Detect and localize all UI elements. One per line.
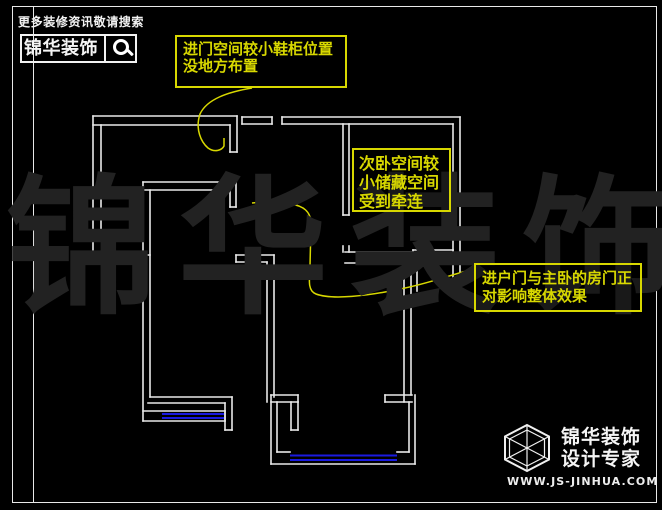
watermark: 锦华装饰 xyxy=(6,168,662,338)
magnifier-handle xyxy=(126,49,134,57)
footer-logo-cube-icon xyxy=(497,423,557,473)
footer-brand: 锦华装饰 设计专家 xyxy=(561,426,641,470)
annotation-box-entry-door: 进户门与主卧的房门正 对影响整体效果 xyxy=(474,263,642,312)
annotation-line: 进户门与主卧的房门正 xyxy=(482,269,640,287)
magnifier-icon xyxy=(106,36,135,61)
annotation-line: 受到牵连 xyxy=(359,192,449,211)
footer-brand-slogan: 设计专家 xyxy=(561,448,641,470)
brand-logo-text: 锦华装饰 xyxy=(22,36,104,61)
annotation-line: 进门空间较小鞋柜位置 xyxy=(183,41,345,58)
floorplan-promo-image: 锦华装饰 更多装修资讯敬请搜索 锦华装饰 进门空间较小鞋柜位置 没地方布置 次卧… xyxy=(0,0,662,510)
search-tagline: 更多装修资讯敬请搜索 xyxy=(18,13,144,30)
annotation-box-second-bedroom: 次卧空间较 小储藏空间 受到牵连 xyxy=(352,148,451,212)
annotation-line: 次卧空间较 xyxy=(359,154,449,173)
magnifier-lens xyxy=(113,39,129,55)
annotation-box-entry: 进门空间较小鞋柜位置 没地方布置 xyxy=(175,35,347,88)
footer-brand-name: 锦华装饰 xyxy=(561,426,641,448)
annotation-line: 没地方布置 xyxy=(183,58,345,75)
brand-logo: 锦华装饰 xyxy=(20,34,137,63)
annotation-line: 对影响整体效果 xyxy=(482,287,640,305)
footer-website: WWW.JS-JINHUA.COM xyxy=(507,475,658,488)
annotation-line: 小储藏空间 xyxy=(359,173,449,192)
